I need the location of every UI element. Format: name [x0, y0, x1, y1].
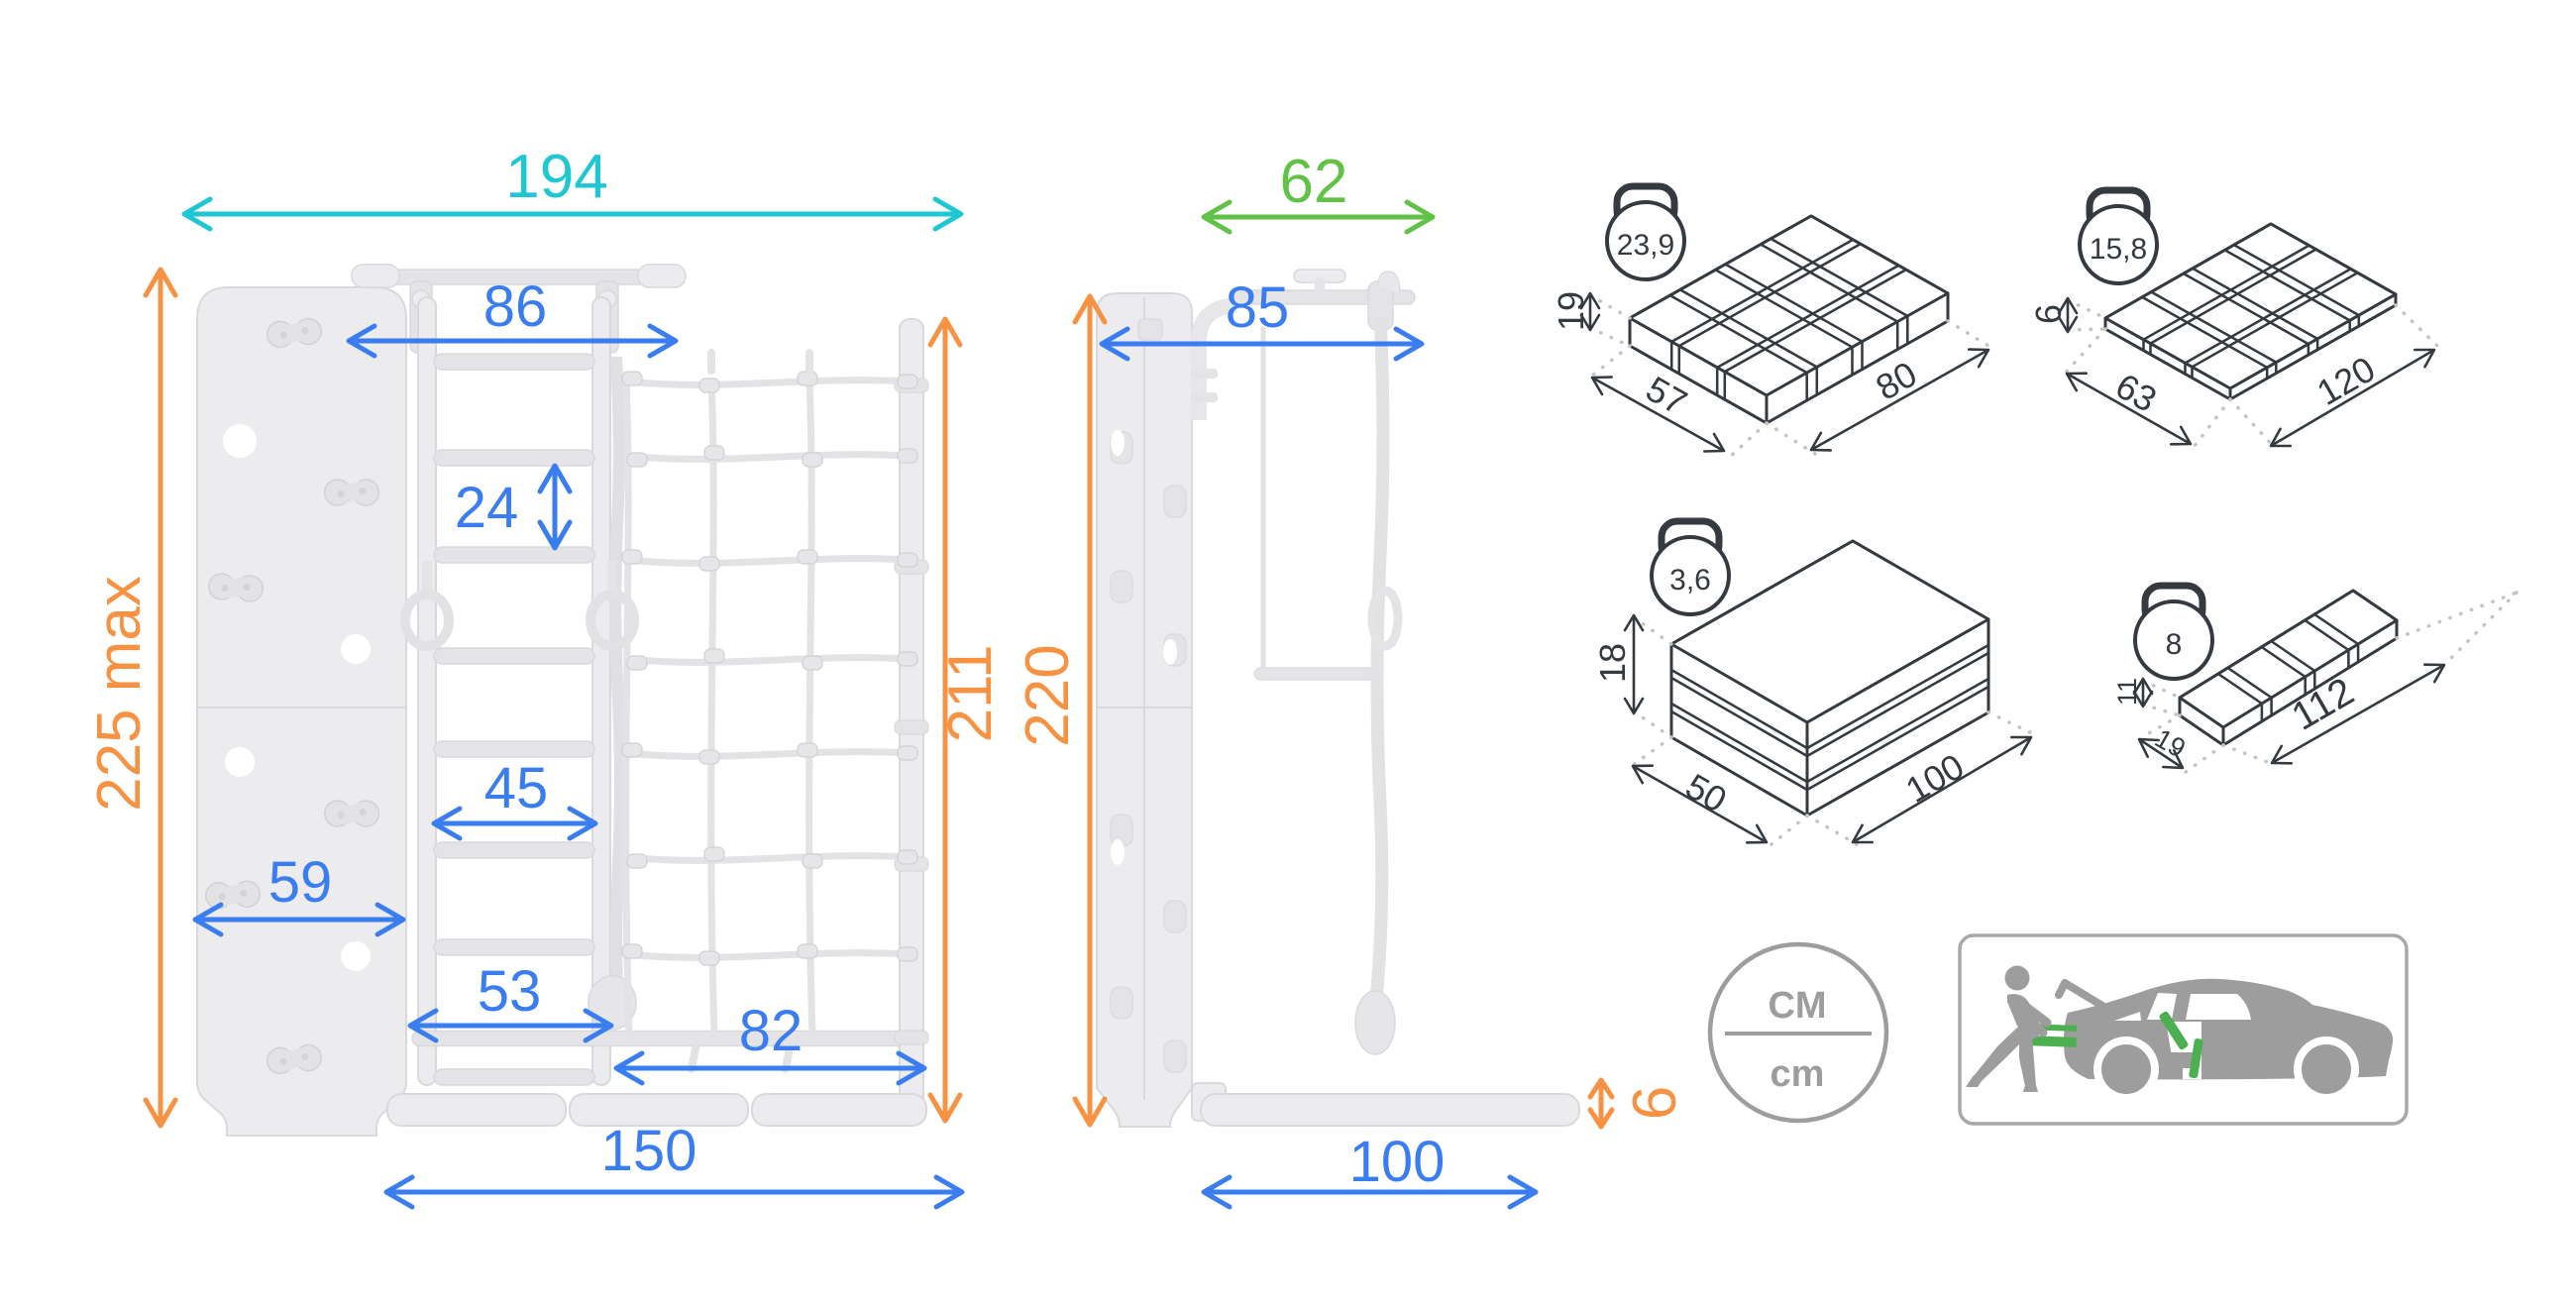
- svg-text:62: 62: [1280, 148, 1348, 216]
- svg-text:86: 86: [483, 274, 548, 339]
- svg-text:6: 6: [1621, 1086, 1689, 1120]
- svg-text:100: 100: [1349, 1130, 1446, 1194]
- svg-text:11: 11: [2112, 678, 2142, 706]
- svg-text:53: 53: [478, 959, 542, 1024]
- svg-text:225 max: 225 max: [85, 576, 154, 812]
- svg-text:150: 150: [601, 1119, 698, 1183]
- svg-text:220: 220: [1014, 644, 1082, 746]
- svg-text:85: 85: [1226, 275, 1290, 340]
- svg-text:59: 59: [268, 850, 333, 915]
- svg-text:3,6: 3,6: [1669, 564, 1711, 597]
- svg-text:6: 6: [2028, 304, 2069, 324]
- svg-text:CM: CM: [1768, 985, 1826, 1027]
- svg-text:15,8: 15,8: [2090, 233, 2147, 266]
- svg-text:24: 24: [455, 476, 519, 540]
- svg-text:8: 8: [2166, 628, 2183, 661]
- svg-text:18: 18: [1592, 643, 1633, 683]
- svg-text:cm: cm: [1771, 1053, 1825, 1095]
- svg-text:194: 194: [505, 143, 607, 211]
- svg-text:19: 19: [1551, 291, 1591, 331]
- svg-text:23,9: 23,9: [1617, 229, 1674, 262]
- svg-text:45: 45: [484, 756, 549, 820]
- svg-text:211: 211: [936, 645, 1005, 743]
- svg-text:82: 82: [739, 999, 804, 1063]
